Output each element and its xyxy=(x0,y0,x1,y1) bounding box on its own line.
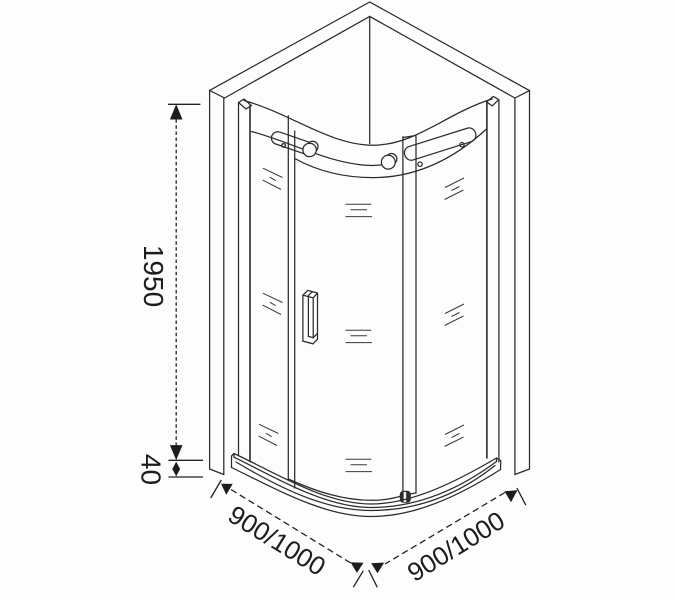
svg-text:40: 40 xyxy=(136,454,167,485)
svg-text:1950: 1950 xyxy=(138,245,169,307)
